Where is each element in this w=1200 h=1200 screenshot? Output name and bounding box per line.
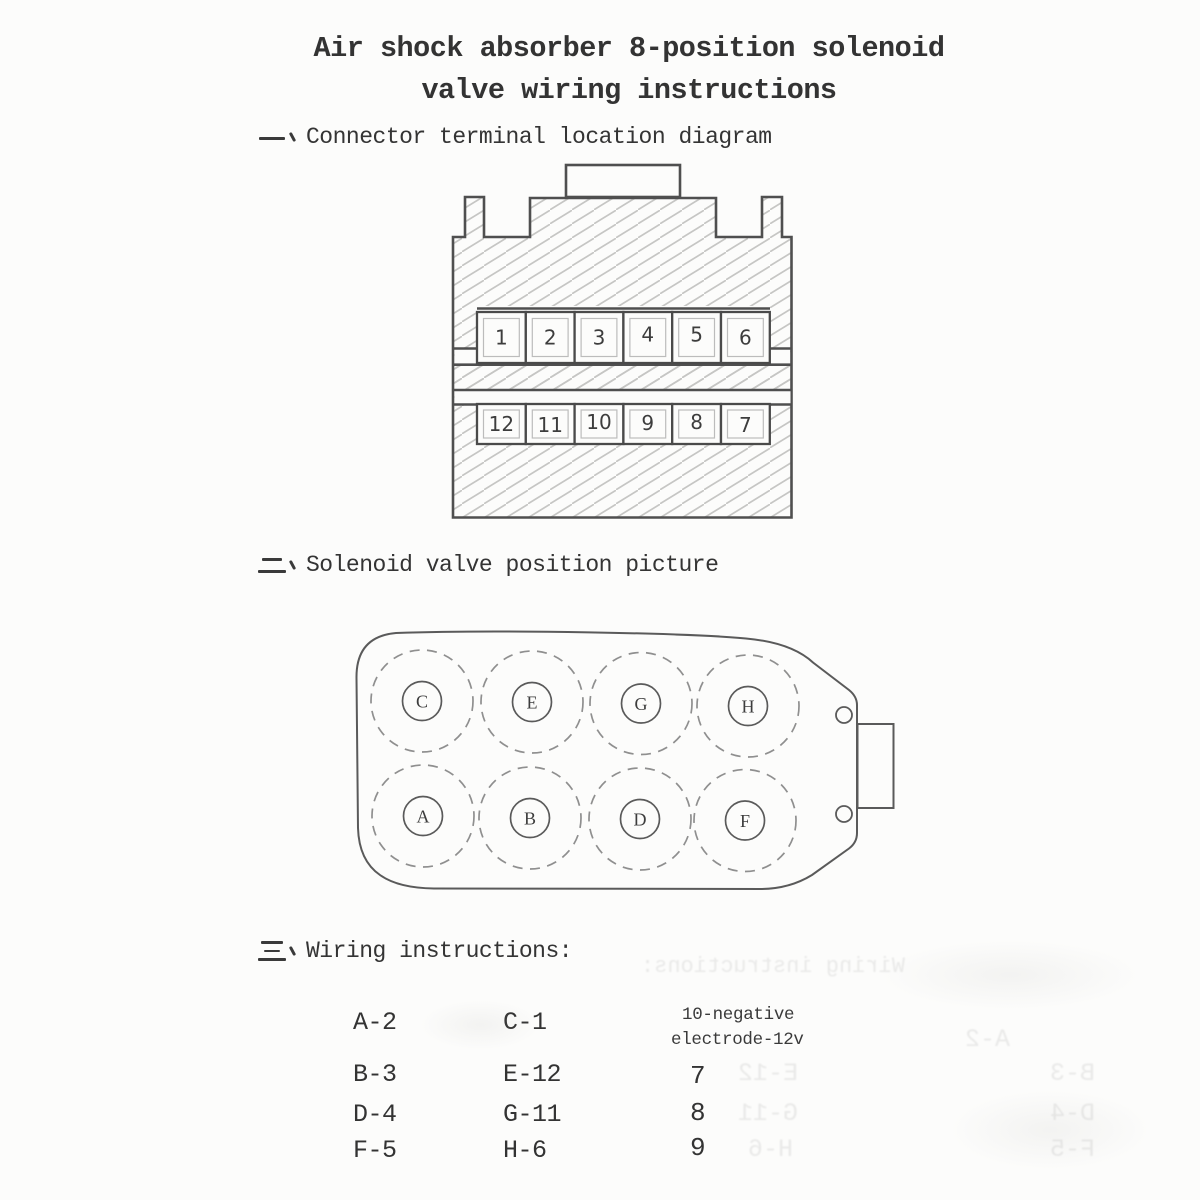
section-3-heading: Wiring instructions:	[257, 936, 572, 966]
wiring-entry-g11: G-11	[503, 1099, 561, 1131]
terminal-1: 1	[477, 312, 526, 363]
cjk-numeral-one-icon	[257, 122, 287, 152]
title-line-1: Air shock absorber 8-position solenoid	[58, 28, 1200, 70]
section-2-title: Solenoid valve position picture	[306, 550, 718, 580]
valve-body-outline	[356, 632, 857, 889]
terminal-5: 5	[672, 312, 721, 363]
svg-text:G: G	[635, 694, 648, 714]
cjk-numeral-two-icon	[257, 550, 287, 580]
svg-text:8: 8	[690, 410, 703, 434]
svg-text:B: B	[524, 808, 536, 828]
terminal-3: 3	[575, 312, 624, 363]
section-2-heading: Solenoid valve position picture	[257, 550, 718, 580]
valve-connector-tab	[858, 724, 894, 808]
svg-text:H: H	[742, 696, 755, 716]
section-3-title: Wiring instructions:	[306, 936, 572, 966]
svg-text:9: 9	[641, 411, 654, 435]
terminal-row-top: 1 2 3 4 5	[477, 312, 770, 363]
terminal-2: 2	[526, 312, 575, 363]
bottom-strip-gap	[455, 391, 791, 405]
cjk-enumeration-comma-icon	[287, 936, 301, 966]
terminal-row-bottom: 12 11 10 9 8	[477, 404, 770, 444]
terminal-7: 7	[721, 404, 770, 444]
solenoid-valve-diagram: C E G H A B D F	[338, 610, 922, 908]
svg-text:1: 1	[495, 326, 508, 350]
terminal-9: 9	[623, 404, 672, 444]
scan-smudge	[950, 1090, 1150, 1170]
wiring-entry-f5: F-5	[353, 1135, 397, 1167]
svg-text:E: E	[527, 692, 538, 712]
section-1-title: Connector terminal location diagram	[306, 122, 772, 152]
wiring-entry-e12: E-12	[503, 1059, 561, 1091]
terminal-8: 8	[672, 404, 721, 444]
wiring-negative-electrode-line1: 10-negative	[682, 1003, 794, 1027]
terminal-6: 6	[721, 312, 770, 363]
wiring-entry-d4: D-4	[353, 1099, 397, 1131]
cjk-enumeration-comma-icon	[287, 122, 301, 152]
svg-text:C: C	[416, 691, 428, 711]
cjk-numeral-three-icon	[257, 936, 287, 966]
svg-text:4: 4	[641, 323, 654, 347]
terminal-11: 11	[526, 404, 575, 444]
wiring-entry-9: 9	[690, 1132, 705, 1164]
cjk-enumeration-comma-icon	[287, 550, 301, 580]
svg-text:3: 3	[593, 326, 606, 350]
svg-text:A: A	[417, 806, 430, 826]
terminal-10: 10	[575, 404, 624, 444]
scan-smudge	[880, 940, 1140, 1010]
svg-text:2: 2	[544, 326, 557, 350]
svg-text:6: 6	[739, 326, 752, 350]
left-notch	[455, 348, 478, 365]
right-notch	[768, 348, 790, 365]
wiring-entry-a2: A-2	[353, 1007, 397, 1039]
svg-text:10: 10	[586, 410, 611, 434]
terminal-12: 12	[477, 404, 526, 444]
middle-hatched-band	[455, 366, 790, 389]
wiring-entry-8: 8	[690, 1097, 705, 1129]
terminal-4: 4	[623, 312, 672, 363]
svg-text:7: 7	[739, 413, 752, 437]
connector-top-tab	[566, 165, 680, 197]
svg-text:D: D	[634, 809, 647, 829]
document-title: Air shock absorber 8-position solenoid v…	[58, 28, 1200, 112]
svg-text:11: 11	[537, 413, 562, 437]
title-line-2: valve wiring instructions	[58, 70, 1200, 112]
section-1-heading: Connector terminal location diagram	[257, 122, 772, 152]
wiring-entry-h6: H-6	[503, 1135, 547, 1167]
wiring-negative-electrode-line2: electrode-12v	[671, 1028, 804, 1052]
svg-text:5: 5	[690, 323, 703, 347]
scan-smudge	[420, 1000, 540, 1050]
svg-text:12: 12	[489, 412, 514, 436]
connector-terminal-diagram: 1 2 3 4 5	[438, 156, 810, 530]
wiring-entry-7: 7	[690, 1060, 705, 1092]
scanned-instruction-page: Air shock absorber 8-position solenoid v…	[0, 0, 1200, 1200]
wiring-entry-b3: B-3	[353, 1059, 397, 1091]
svg-text:F: F	[740, 811, 750, 831]
